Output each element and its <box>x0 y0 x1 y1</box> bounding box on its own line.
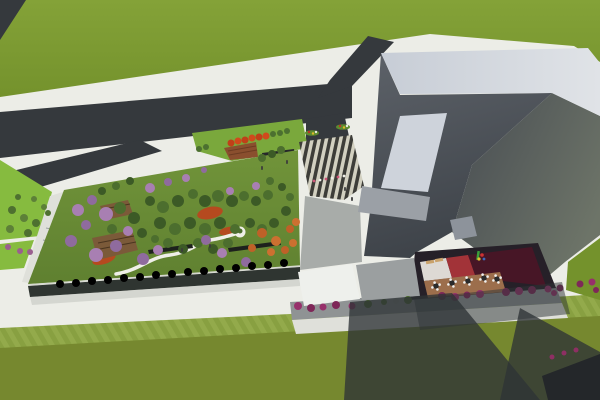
shrub-magenta <box>593 287 599 293</box>
tree-autumn-orange <box>257 228 267 238</box>
shrub-green <box>32 219 40 227</box>
chair <box>465 276 468 279</box>
tree-green <box>245 218 255 228</box>
chair <box>447 283 450 286</box>
tree-green <box>199 223 211 235</box>
tree-green <box>184 217 196 229</box>
person <box>181 248 183 252</box>
tree-green <box>98 187 106 195</box>
flowering-tree-purple <box>110 240 122 252</box>
tree-green <box>269 218 279 228</box>
chair <box>499 276 502 279</box>
chair <box>497 281 500 284</box>
flowering-tree-purple <box>81 220 91 230</box>
facade-tree-dark <box>120 274 128 282</box>
tree-green <box>214 217 226 229</box>
flower-dot <box>308 131 310 133</box>
shrub-magenta <box>589 279 596 286</box>
round-table-with-chairs <box>433 283 439 289</box>
tree-autumn-orange <box>292 218 300 226</box>
shrub-green <box>8 206 16 214</box>
tree-autumn-orange <box>286 225 294 233</box>
plaza-lower-walk <box>300 196 362 270</box>
person <box>309 169 311 173</box>
facade-tree-dark <box>104 276 112 284</box>
flowering-tree-purple <box>89 248 103 262</box>
flowering-tree-purple <box>201 235 211 245</box>
tree-green <box>277 146 285 154</box>
small-red-tree <box>249 135 256 142</box>
tree-green <box>266 177 274 185</box>
shrub-green <box>6 225 14 233</box>
chair <box>452 285 455 288</box>
person <box>344 187 346 191</box>
person <box>330 165 332 169</box>
tree-green <box>278 183 286 191</box>
chair <box>449 278 452 281</box>
aerial-render <box>0 0 600 400</box>
chair <box>436 288 439 291</box>
tree-green <box>188 189 198 199</box>
tree-green <box>263 190 273 200</box>
flowering-tree-purple <box>72 204 84 216</box>
facade-tree-dark <box>264 261 272 269</box>
facade-tree-dark <box>216 265 224 273</box>
tree-green <box>137 228 147 238</box>
flowering-tree-purple <box>137 253 149 265</box>
chair <box>481 273 484 276</box>
chair <box>468 283 471 286</box>
flowering-tree-purple <box>145 183 155 193</box>
facade-tree-dark <box>72 279 80 287</box>
flowering-tree-purple <box>226 187 234 195</box>
aerial-render-canvas <box>0 0 600 400</box>
flower-dot <box>315 131 317 133</box>
shrub-magenta-small <box>550 355 555 360</box>
round-table-with-chairs <box>481 275 487 281</box>
facade-tree-dark <box>56 280 64 288</box>
tree-green <box>157 201 169 213</box>
person <box>209 244 211 248</box>
shrub-green <box>15 194 21 200</box>
tree-autumn-orange <box>281 246 289 254</box>
tree-green <box>107 224 117 234</box>
shrub-purple <box>27 249 33 255</box>
flowering-tree-purple <box>123 226 133 236</box>
shrub-magenta <box>307 304 315 312</box>
chair <box>484 280 487 283</box>
round-table-with-chairs <box>494 276 500 282</box>
tree-green <box>154 217 166 229</box>
flowering-tree-purple <box>252 182 260 190</box>
canopy-gray <box>356 258 420 300</box>
tree-green <box>145 196 155 206</box>
tree-green <box>112 182 120 190</box>
flower-dot <box>343 126 345 128</box>
flower-dot <box>339 125 341 127</box>
shrub-green <box>41 204 47 210</box>
flower-dot <box>325 178 328 181</box>
flower-dot <box>331 177 334 180</box>
facade-tree-dark <box>200 267 208 275</box>
chair <box>463 281 466 284</box>
tree-green <box>169 223 181 235</box>
chair <box>470 278 473 281</box>
tree-green <box>163 238 173 248</box>
shrub-green <box>45 210 51 216</box>
shrub-magenta-small <box>574 348 579 353</box>
chair <box>431 286 434 289</box>
chair <box>433 281 436 284</box>
playground-yellow <box>477 257 480 260</box>
tree-autumn-orange <box>248 244 256 252</box>
tree-green <box>226 195 238 207</box>
facade-tree-dark <box>248 262 256 270</box>
tree-green <box>128 212 140 224</box>
facade-tree-dark <box>184 268 192 276</box>
person <box>286 160 288 164</box>
shrub-magenta <box>577 281 584 288</box>
small-red-tree <box>256 134 263 141</box>
flower-dot <box>346 125 348 127</box>
shrub-purple <box>5 244 11 250</box>
facade-tree-dark <box>280 259 288 267</box>
small-green-tree <box>284 128 290 134</box>
small-green-tree <box>277 130 283 136</box>
tree-green <box>286 193 294 201</box>
chair <box>479 278 482 281</box>
facade-tree-dark <box>152 271 160 279</box>
flowering-tree-purple <box>217 248 227 258</box>
small-red-tree <box>242 137 249 144</box>
tree-green <box>178 244 188 254</box>
tree-green <box>230 224 240 234</box>
tree-green <box>199 195 211 207</box>
shrub-green <box>24 229 32 237</box>
shrub-green <box>31 196 37 202</box>
small-green-tree <box>270 131 276 137</box>
shrub-magenta-small <box>562 351 567 356</box>
person <box>351 197 353 201</box>
person <box>261 166 263 170</box>
small-red-tree <box>228 140 235 147</box>
tree-autumn-orange <box>271 236 281 246</box>
tree-green <box>281 206 291 216</box>
flower-dot <box>319 179 322 182</box>
flowering-tree-purple <box>201 167 207 173</box>
facade-tree-dark <box>232 264 240 272</box>
flowering-tree-purple <box>182 174 190 182</box>
tree-green <box>239 191 249 201</box>
playground-red <box>480 253 484 257</box>
flower-dot <box>343 175 346 178</box>
flowering-tree-purple <box>153 245 163 255</box>
flower-dot <box>313 180 316 183</box>
chair <box>454 280 457 283</box>
shrub-green <box>20 214 28 222</box>
tree-autumn-orange <box>267 248 275 256</box>
facade-tree-dark <box>136 273 144 281</box>
flowering-tree-purple <box>99 207 113 221</box>
flowering-tree-purple <box>87 195 97 205</box>
small-green-tree <box>196 146 202 152</box>
flower-dot <box>312 132 314 134</box>
round-table-with-chairs <box>465 278 471 284</box>
playground-blue <box>483 258 486 261</box>
tree-green <box>268 150 276 158</box>
tree-green <box>126 177 134 185</box>
tree-green <box>212 190 224 202</box>
shrub-magenta <box>332 301 340 309</box>
flowering-tree-purple <box>65 235 77 247</box>
chair <box>492 279 495 282</box>
tree-green <box>258 154 266 162</box>
shrub-magenta <box>294 302 302 310</box>
tree-green <box>172 195 184 207</box>
chair <box>494 274 497 277</box>
tree-autumn-orange <box>289 239 297 247</box>
small-green-tree <box>203 144 209 150</box>
tree-green <box>251 196 261 206</box>
facade-tree-dark <box>88 277 96 285</box>
round-table-with-chairs <box>449 280 455 286</box>
flower-dot <box>337 176 340 179</box>
chair <box>486 275 489 278</box>
small-red-tree <box>263 133 270 140</box>
chair <box>438 283 441 286</box>
tree-green <box>151 235 159 243</box>
shrub-purple <box>17 248 23 254</box>
flowering-tree-purple <box>164 178 172 186</box>
tree-green <box>114 202 126 214</box>
facade-tree-dark <box>168 270 176 278</box>
tree-green <box>223 238 233 248</box>
shrub-magenta <box>320 304 327 311</box>
small-red-tree <box>235 138 242 145</box>
